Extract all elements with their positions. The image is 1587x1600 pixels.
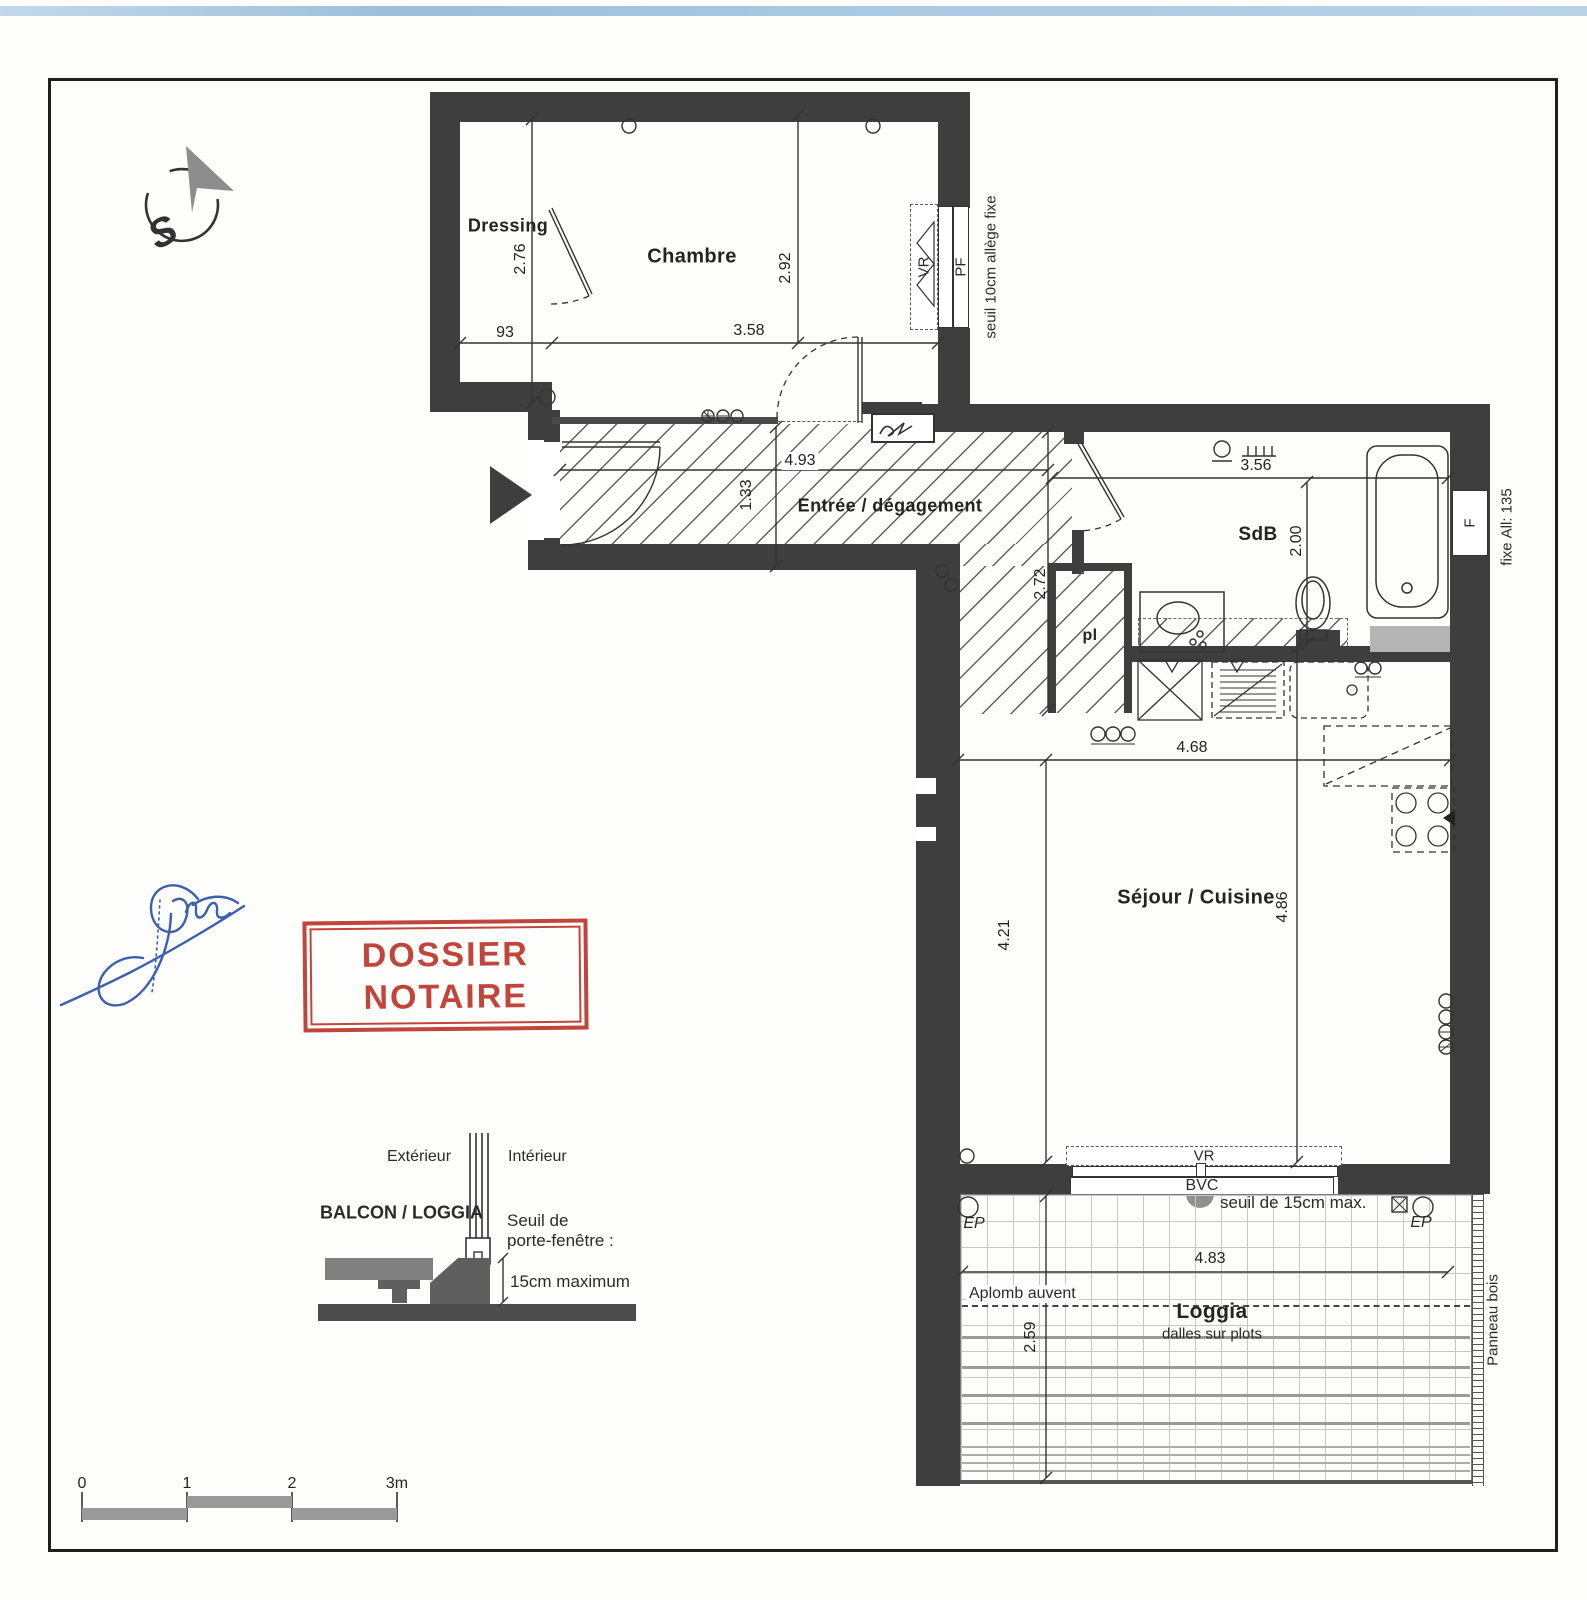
entry-door-opening (528, 440, 560, 540)
duct-shaft (1370, 626, 1450, 652)
entry-door-jamb-top (544, 434, 560, 442)
dim-dressing-h: 2.76 (512, 243, 530, 274)
loggia-board-line (962, 1366, 1470, 1369)
dim-sejour-w: 4.68 (1176, 739, 1207, 757)
panneau-bois-strip (1472, 1194, 1484, 1486)
dim-sejour-h-left: 4.21 (996, 919, 1014, 950)
sdb-window-note-2: All: 135 (1499, 488, 1516, 538)
wall-notch-1 (916, 778, 936, 794)
scalebar-segment (187, 1496, 292, 1508)
loggia-board-line (962, 1462, 1470, 1464)
ep-left-label: EP (963, 1215, 984, 1233)
sejour-window-bvc-label: BVC (1186, 1177, 1219, 1195)
scan-top-band (0, 6, 1587, 16)
detail-seuil-line-2: porte-fenêtre : (507, 1231, 614, 1251)
wall-notch-2 (916, 827, 936, 841)
room-label-entree: Entrée / dégagement (798, 496, 983, 517)
room-label-sdb: SdB (1238, 524, 1277, 546)
detail-seuil-line-1: Seuil de (507, 1211, 568, 1231)
scalebar-segment (292, 1508, 397, 1520)
detail-max-label: 15cm maximum (510, 1272, 630, 1292)
detail-exterior-label: Extérieur (387, 1148, 451, 1166)
chambre-window-vr-label: VR (916, 257, 933, 278)
stamp-line-1: DOSSIER (362, 933, 529, 977)
loggia-board-line (962, 1470, 1470, 1472)
dim-dressing-w: 93 (496, 324, 514, 342)
wall-dressing-bottom (430, 382, 552, 412)
room-label-loggia: Loggia (1176, 1300, 1247, 1324)
loggia-bottom-edge (960, 1480, 1472, 1484)
chambre-window-glass (938, 206, 953, 328)
dim-chambre-h: 2.92 (777, 252, 795, 283)
aplomb-auvent-label: Aplomb auvent (966, 1285, 1079, 1303)
scalebar-3m: 3m (386, 1475, 408, 1493)
dim-sdb-h: 2.00 (1288, 525, 1306, 556)
room-label-chambre: Chambre (647, 246, 737, 269)
wall-sdb-door-jamb (1064, 432, 1084, 444)
partition-chambre-entree (552, 417, 778, 424)
wall-sejour-bottom-left (960, 1164, 1082, 1194)
dim-loggia-h: 2.59 (1022, 1321, 1040, 1352)
detail-title: BALCON / LOGGIA (320, 1203, 483, 1224)
sejour-window-divider (1196, 1163, 1206, 1177)
panneau-bois-label: Panneau bois (1485, 1274, 1502, 1366)
chambre-window-note-1: seuil 10cm (983, 267, 1000, 339)
sejour-window-vr-label: VR (1194, 1148, 1215, 1165)
wall-top-right-section (920, 404, 1490, 432)
dim-chambre-w: 3.58 (733, 322, 764, 340)
wall-chambre-right-upper (938, 92, 970, 208)
room-label-sejour: Séjour / Cuisine (1117, 887, 1275, 910)
wall-chambre-left (430, 92, 460, 412)
entree-hatch-floor (560, 424, 1072, 544)
stamp-line-2: NOTAIRE (363, 975, 528, 1019)
loggia-board-line (962, 1446, 1470, 1448)
wall-loggia-left (916, 1194, 960, 1486)
room-label-dressing: Dressing (468, 216, 548, 237)
dim-entree-w: 4.93 (781, 452, 818, 470)
loggia-subtitle: dalles sur plots (1162, 1326, 1262, 1343)
dim-sejour-h-right: 4.86 (1274, 891, 1292, 922)
wall-wc-stub (1296, 630, 1340, 648)
dim-sdb-w: 3.56 (1240, 457, 1271, 475)
wall-chambre-top (430, 92, 970, 122)
scalebar-1: 1 (183, 1475, 192, 1493)
dim-corridor-h: 2.72 (1032, 568, 1050, 599)
detail-interior-label: Intérieur (508, 1148, 567, 1166)
wall-elec-stub (862, 402, 922, 414)
loggia-board-line (962, 1454, 1470, 1456)
scalebar-2: 2 (288, 1475, 297, 1493)
scalebar-0: 0 (78, 1475, 87, 1493)
floor-plan-page: DOSSIER NOTAIRE (0, 0, 1587, 1600)
wall-chambre-right-lower (938, 328, 970, 412)
room-label-placard: pl (1082, 627, 1097, 645)
chambre-door-threshold (777, 421, 861, 422)
wall-entree-bottom (528, 544, 922, 570)
chambre-window-pf-label: PF (953, 257, 970, 276)
loggia-board-line (962, 1422, 1470, 1425)
wall-sejour-left (916, 544, 960, 1194)
wall-sejour-bottom-right (1338, 1164, 1490, 1194)
scalebar-segment (82, 1508, 187, 1520)
chambre-window-note-2: allège fixe (983, 195, 1000, 263)
dim-entree-h: 1.33 (738, 479, 756, 510)
dim-loggia-w: 4.83 (1194, 1250, 1225, 1268)
loggia-board-line (962, 1394, 1470, 1397)
notary-stamp-inner-border: DOSSIER NOTAIRE (309, 926, 581, 1026)
sejour-seuil-note: seuil de 15cm max. (1220, 1193, 1366, 1213)
ep-right-label: EP (1410, 1214, 1431, 1232)
sdb-window-note-1: fixe (1499, 542, 1516, 565)
sdb-window-f-label: F (1462, 518, 1479, 527)
notary-stamp: DOSSIER NOTAIRE (302, 919, 588, 1033)
